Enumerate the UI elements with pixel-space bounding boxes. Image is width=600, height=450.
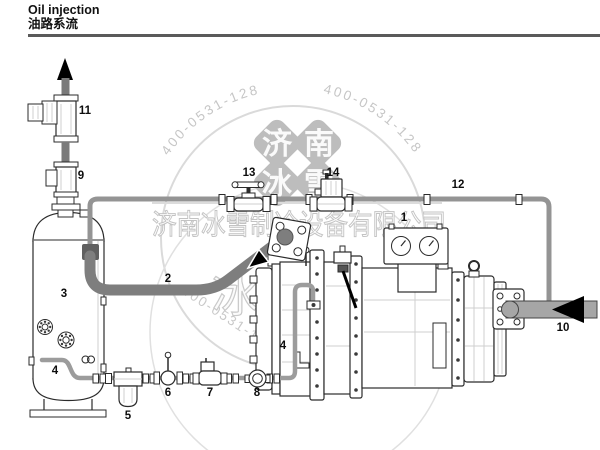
oil-injection-diagram-page: Oil injection 油路系流 400-0531-128 400-0531… [0, 0, 600, 450]
label-11: 11 [79, 105, 92, 117]
pipe-2-end [277, 229, 293, 245]
oil-separator-tank [29, 210, 106, 417]
label-1: 1 [401, 212, 408, 224]
fitting-9 [46, 162, 78, 197]
label-9: 9 [78, 170, 84, 182]
label-2: 2 [165, 273, 171, 285]
oil-injection-port [307, 301, 320, 309]
valve-11 [28, 95, 78, 142]
header-rule [28, 34, 600, 37]
flow-arrow-suction [552, 296, 584, 323]
label-4a: 4 [52, 365, 59, 377]
label-12: 12 [452, 179, 465, 191]
watermark-phone-arc-left: 400-0531-128 [158, 82, 261, 158]
label-10: 10 [557, 322, 570, 334]
piping-diagram-canvas: 400-0531-128 400-0531-128 400-0531-128 济… [0, 0, 600, 450]
hand-valve-13 [227, 182, 270, 212]
oil-filter-5 [114, 368, 142, 407]
label-5: 5 [125, 410, 132, 422]
label-6: 6 [165, 387, 171, 399]
lifting-eye [469, 261, 479, 277]
dome-stub [80, 210, 88, 217]
logo-char-2: 南 [304, 128, 334, 161]
page-title: Oil injection [28, 4, 600, 17]
flow-arrow-up [57, 58, 73, 80]
valve-7 [193, 358, 227, 385]
label-8: 8 [254, 387, 261, 399]
label-14: 14 [327, 167, 340, 179]
gas-outlet-stack [28, 58, 80, 217]
label-3: 3 [61, 288, 67, 300]
diagram-header: Oil injection 油路系流 [28, 4, 600, 37]
page-title-zh: 油路系流 [28, 17, 600, 31]
compressor-panel [433, 323, 446, 368]
label-7: 7 [207, 387, 213, 399]
label-4b: 4 [280, 340, 287, 352]
label-13: 13 [243, 167, 256, 179]
logo-char-1: 济 [262, 127, 293, 161]
valve-6 [154, 352, 183, 385]
